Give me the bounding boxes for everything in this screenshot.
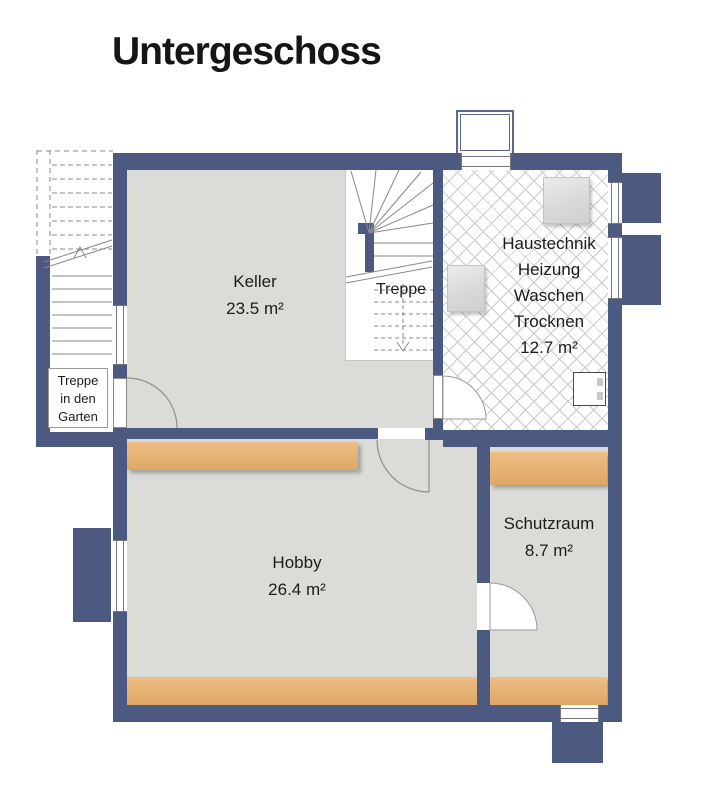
wall-haustechnik-bottom <box>443 430 622 447</box>
wall-garden-bottom <box>36 432 113 447</box>
door-leaf-haustechnik <box>433 375 443 419</box>
appliance-washer <box>543 177 590 224</box>
wall-bottom-left <box>113 705 560 722</box>
wall-left-mid <box>113 428 127 540</box>
room-schutzraum-floor <box>490 447 608 705</box>
window-haustechnik-right-1 <box>608 182 622 224</box>
schutzraum-bottom-shelf <box>490 677 607 705</box>
room-label-keller: Keller 23.5 m² <box>195 268 315 322</box>
haustechnik-line-3: Waschen <box>469 283 629 309</box>
wall-stair-spandrel-v <box>365 232 374 272</box>
wall-bottom-right <box>597 705 622 722</box>
room-label-hobby: Hobby 26.4 m² <box>237 549 357 603</box>
lightwell-right-upper <box>622 173 661 223</box>
room-label-haustechnik: Haustechnik Heizung Waschen Trocknen 12.… <box>469 231 629 361</box>
lightwell-left <box>73 528 111 622</box>
haustechnik-area: 12.7 m² <box>469 335 629 361</box>
wall-top-right <box>509 153 622 170</box>
wall-stair-haustechnik <box>433 167 443 375</box>
lightwell-bottom <box>552 722 603 763</box>
hobby-name: Hobby <box>237 549 357 576</box>
garden-stair-line-1: Treppe <box>49 372 107 390</box>
lightwell-top <box>456 110 514 155</box>
window-haustechnik-top <box>461 153 511 170</box>
wall-right-1 <box>608 153 622 182</box>
wall-keller-hobby <box>113 428 378 439</box>
wall-stair-stub <box>433 419 443 435</box>
door-leaf-keller-entry <box>113 378 127 428</box>
hobby-bottom-cabinet <box>127 677 477 705</box>
wall-schutzraum-lower <box>477 630 490 705</box>
wall-left-upper <box>113 153 127 305</box>
stair-label: Treppe <box>361 279 441 301</box>
window-hobby-left <box>113 540 127 612</box>
room-label-schutzraum: Schutzraum 8.7 m² <box>479 510 619 564</box>
schutzraum-top-shelf <box>490 452 607 485</box>
keller-name: Keller <box>195 268 315 295</box>
interior-stairwell <box>345 170 434 361</box>
wall-left-stub <box>113 363 127 378</box>
wall-top-left <box>113 153 461 170</box>
hobby-top-cabinet <box>127 442 358 470</box>
haustechnik-line-4: Trocknen <box>469 309 629 335</box>
page-title: Untergeschoss <box>112 30 381 74</box>
floor-plan: Untergeschoss <box>0 0 704 800</box>
haustechnik-line-2: Heizung <box>469 257 629 283</box>
garden-stair-line-2: in den <box>49 390 107 408</box>
hobby-area: 26.4 m² <box>237 576 357 603</box>
window-keller-left <box>113 305 127 365</box>
schutzraum-name: Schutzraum <box>479 510 619 537</box>
garden-stair-line-3: Garten <box>49 408 107 426</box>
heating-unit <box>573 372 606 406</box>
schutzraum-area: 8.7 m² <box>479 537 619 564</box>
window-schutzraum-bottom <box>560 705 599 722</box>
keller-area: 23.5 m² <box>195 295 315 322</box>
garden-stair-label: Treppe in den Garten <box>48 368 108 428</box>
haustechnik-line-1: Haustechnik <box>469 231 629 257</box>
